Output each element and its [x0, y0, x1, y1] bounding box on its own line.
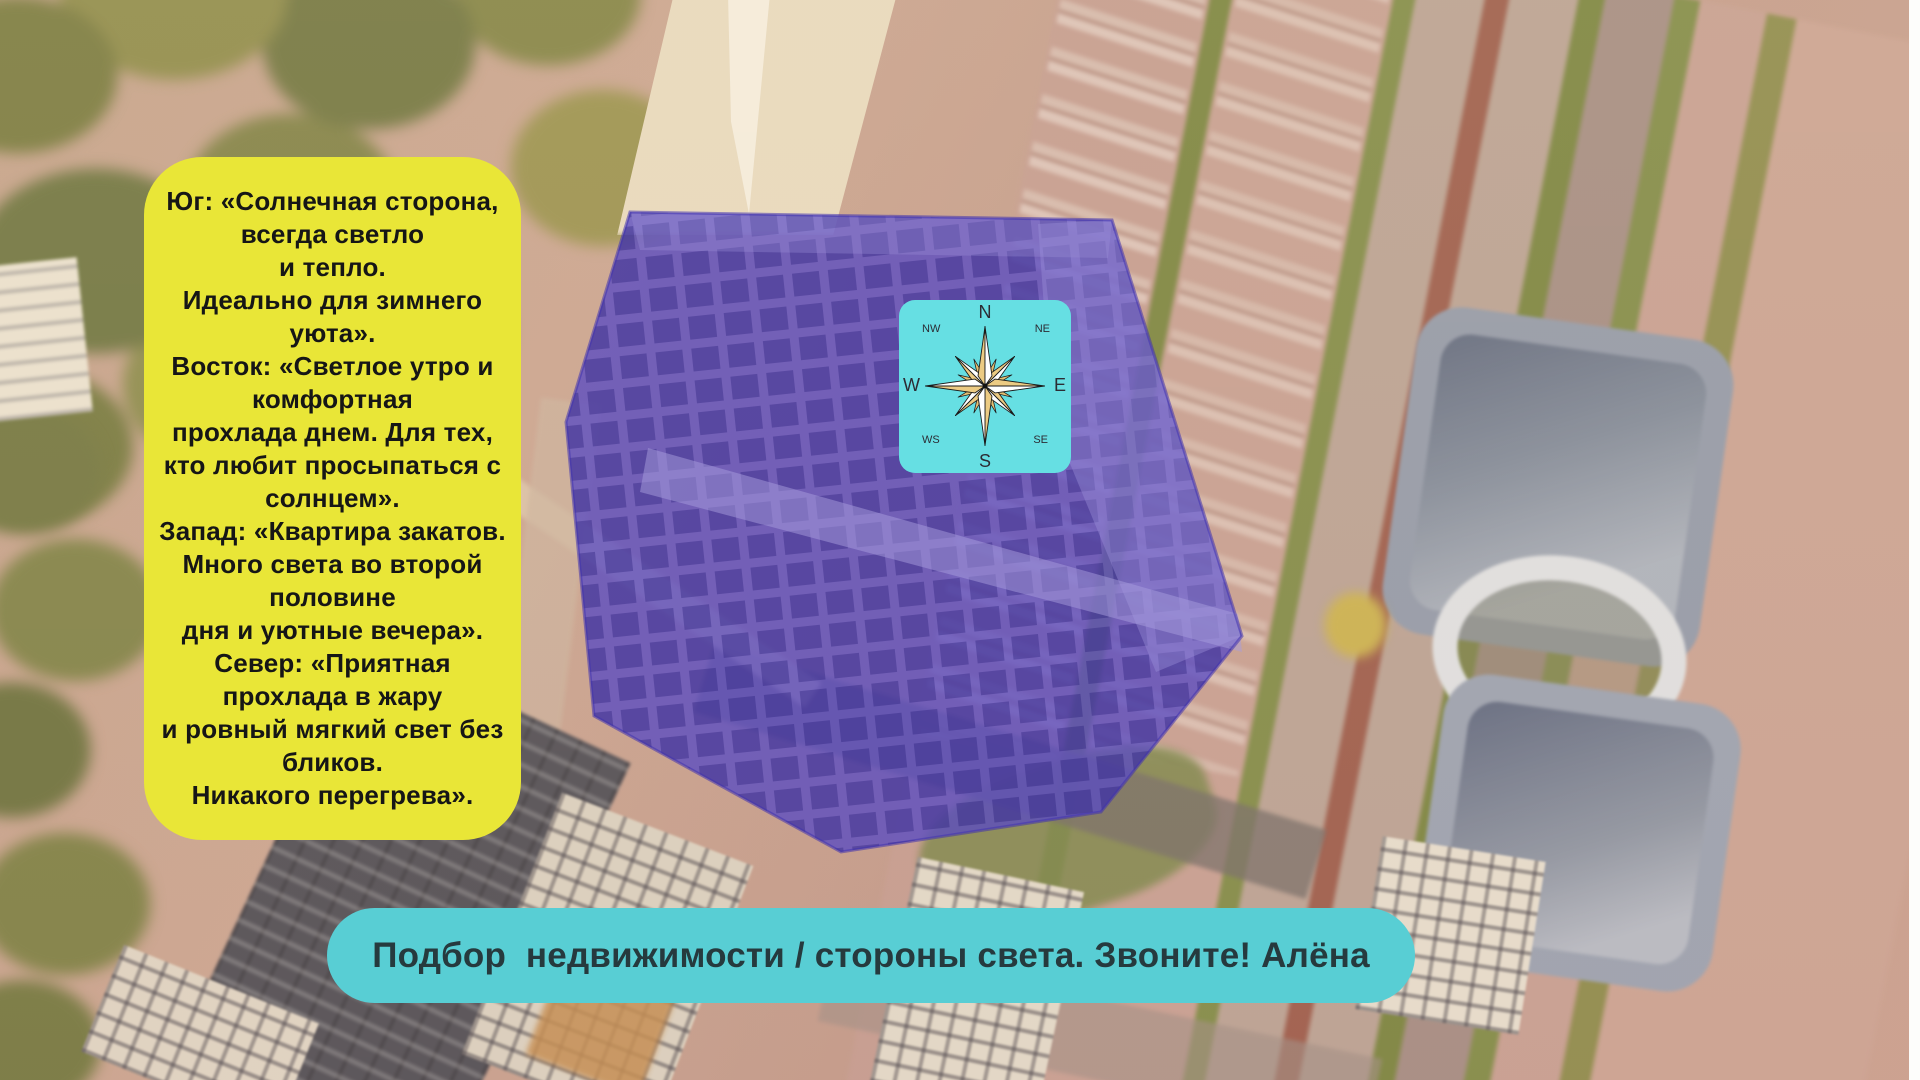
real-estate-promo-image: Юг: «Солнечная сторона, всегда светло и … [0, 0, 1920, 1080]
banner-text: Подбор недвижимости / стороны света. Зво… [372, 936, 1370, 976]
compass-label-w: W [903, 374, 920, 395]
compass-label-se: SE [1033, 434, 1048, 446]
info-line: Запад: «Квартира закатов. [154, 515, 511, 548]
compass-card: N NE E SE S WS W NW [899, 300, 1071, 473]
info-line: кто любит просыпаться с [154, 449, 511, 482]
info-line: Много света во второй [154, 548, 511, 581]
info-line: уюта». [154, 317, 511, 350]
info-line: и тепло. [154, 251, 511, 284]
info-line: Юг: «Солнечная сторона, [154, 185, 511, 218]
info-line: дня и уютные вечера». [154, 614, 511, 647]
compass-label-ne: NE [1035, 323, 1050, 335]
info-line: прохлада в жару [154, 680, 511, 713]
compass-label-ws: WS [922, 434, 940, 446]
contact-banner: Подбор недвижимости / стороны света. Зво… [327, 908, 1415, 1003]
info-line: комфортная [154, 383, 511, 416]
compass-label-n: N [979, 302, 992, 323]
compass-label-e: E [1054, 374, 1066, 395]
compass-label-nw: NW [922, 323, 940, 335]
info-line: бликов. [154, 746, 511, 779]
orientation-info-card: Юг: «Солнечная сторона, всегда светло и … [144, 157, 521, 840]
compass-label-s: S [979, 451, 991, 472]
info-line: и ровный мягкий свет без [154, 713, 511, 746]
info-line: половине [154, 581, 511, 614]
info-line: Восток: «Светлое утро и [154, 350, 511, 383]
info-line: солнцем». [154, 482, 511, 515]
info-line: всегда светло [154, 218, 511, 251]
info-line: Идеально для зимнего [154, 284, 511, 317]
white-edge-strip [1909, 0, 1920, 1080]
info-line: Север: «Приятная [154, 647, 511, 680]
info-line: Никакого перегрева». [154, 779, 511, 812]
info-line: прохлада днем. Для тех, [154, 416, 511, 449]
